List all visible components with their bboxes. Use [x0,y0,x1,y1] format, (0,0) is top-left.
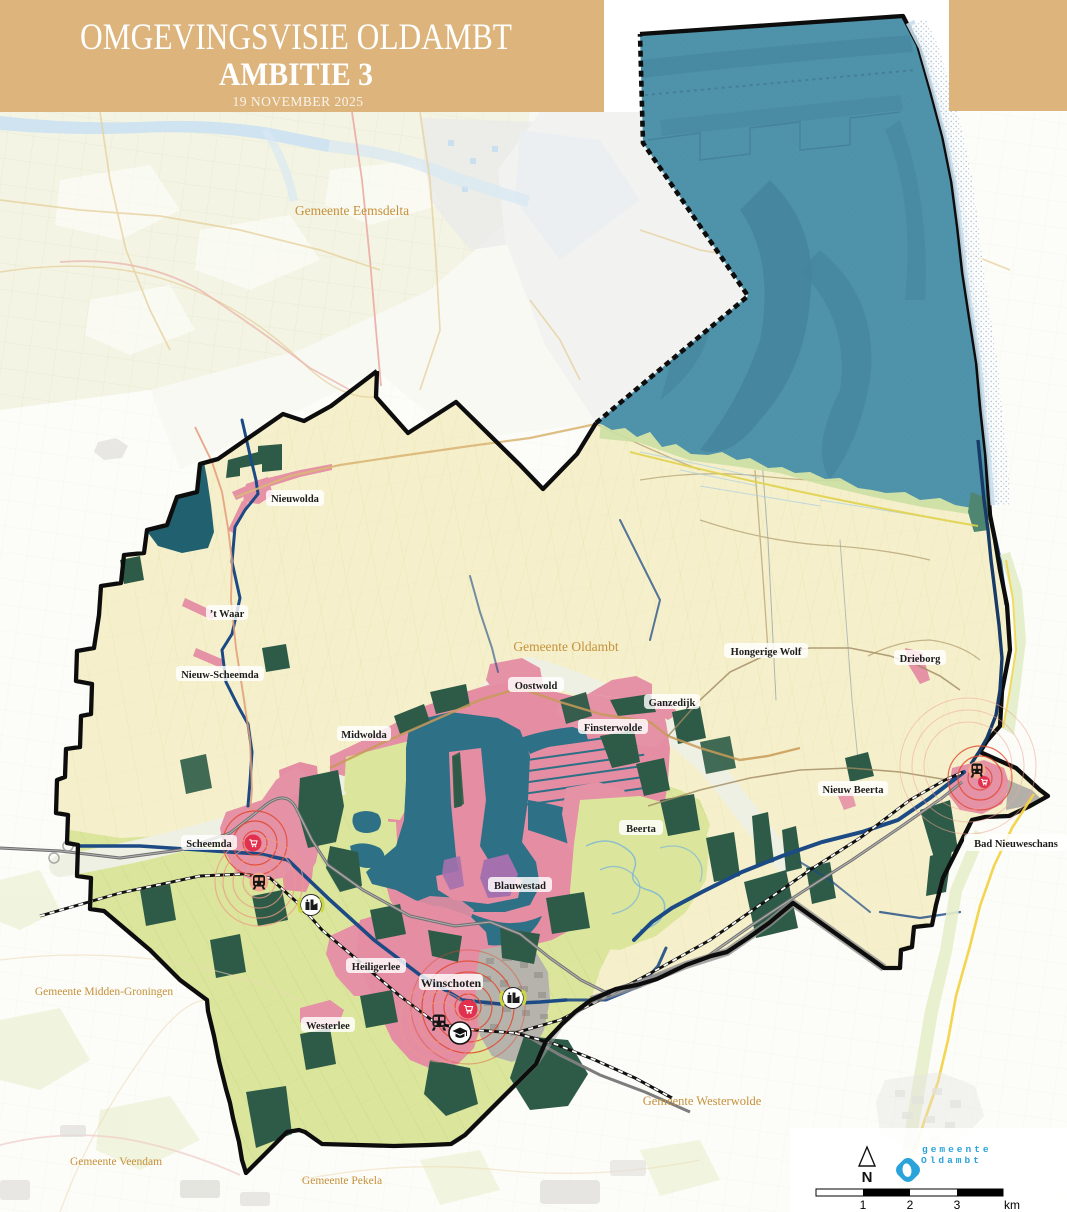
svg-text:Gemeente Pekela: Gemeente Pekela [302,1175,382,1187]
svg-text:Drieborg: Drieborg [900,654,942,665]
svg-text:OMGEVINGSVISIE OLDAMBT: OMGEVINGSVISIE OLDAMBT [80,17,512,58]
svg-text:Nieuw Beerta: Nieuw Beerta [823,785,885,796]
svg-text:3: 3 [954,1198,961,1212]
svg-text:Gemeente Oldambt: Gemeente Oldambt [513,639,619,654]
svg-text:Hongerige Wolf: Hongerige Wolf [731,647,802,658]
svg-text:Winschoten: Winschoten [421,976,482,990]
svg-text:Blauwestad: Blauwestad [494,881,546,892]
svg-text:Finsterwolde: Finsterwolde [584,723,643,734]
svg-text:Gemeente Westerwolde: Gemeente Westerwolde [643,1094,762,1108]
svg-text:Oostwold: Oostwold [515,681,558,692]
svg-text:Heiligerlee: Heiligerlee [352,962,401,973]
svg-text:Oldambt: Oldambt [921,1155,982,1166]
svg-text:N: N [862,1169,873,1186]
svg-text:Beerta: Beerta [626,824,656,835]
svg-text:Scheemda: Scheemda [186,839,232,850]
svg-text:Westerlee: Westerlee [306,1021,350,1032]
svg-text:Nieuwolda: Nieuwolda [271,494,320,505]
svg-text:’t Waar: ’t Waar [210,609,245,620]
svg-text:Gemeente Eemsdelta: Gemeente Eemsdelta [295,203,409,218]
svg-text:AMBITIE 3: AMBITIE 3 [219,57,373,93]
svg-text:1: 1 [860,1198,867,1212]
svg-text:Gemeente Veendam: Gemeente Veendam [70,1156,162,1168]
svg-text:gemeente: gemeente [922,1144,992,1155]
svg-text:2: 2 [907,1198,914,1212]
svg-text:km: km [1004,1198,1020,1212]
svg-text:Gemeente Midden-Groningen: Gemeente Midden-Groningen [35,986,174,998]
svg-text:19 NOVEMBER 2025: 19 NOVEMBER 2025 [232,94,363,109]
svg-text:Midwolda: Midwolda [341,730,387,741]
svg-text:Ganzedijk: Ganzedijk [649,698,696,709]
svg-text:Nieuw-Scheemda: Nieuw-Scheemda [181,670,259,681]
svg-text:Bad Nieuweschans: Bad Nieuweschans [974,839,1058,850]
